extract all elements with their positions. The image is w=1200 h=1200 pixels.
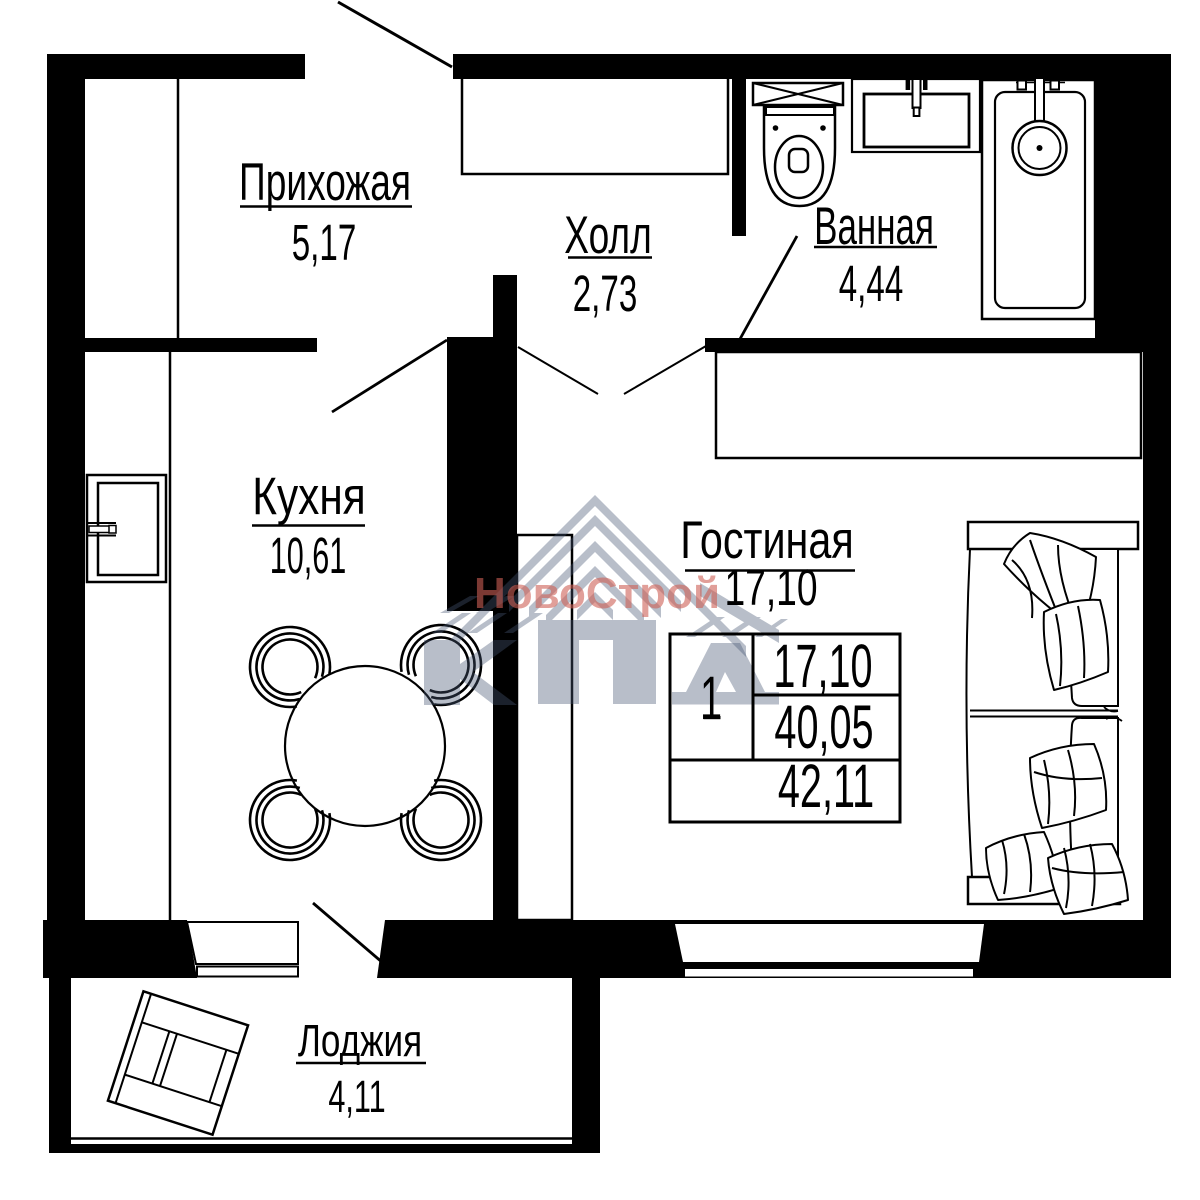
svg-text:Холл: Холл (564, 205, 651, 264)
svg-text:5,17: 5,17 (292, 215, 357, 272)
svg-text:4,44: 4,44 (839, 256, 904, 313)
svg-text:Прихожая: Прихожая (239, 152, 411, 211)
svg-text:НовоСтрой: НовоСтрой (474, 569, 720, 618)
svg-text:Кухня: Кухня (252, 468, 365, 527)
svg-text:Лоджия: Лоджия (298, 1015, 422, 1066)
svg-text:42,11: 42,11 (778, 751, 874, 820)
svg-text:2,73: 2,73 (573, 266, 638, 323)
svg-text:17,10: 17,10 (724, 560, 817, 616)
svg-text:1: 1 (700, 663, 722, 732)
svg-text:17,10: 17,10 (773, 631, 872, 700)
svg-text:10,61: 10,61 (270, 527, 347, 584)
svg-text:4,11: 4,11 (328, 1072, 385, 1122)
